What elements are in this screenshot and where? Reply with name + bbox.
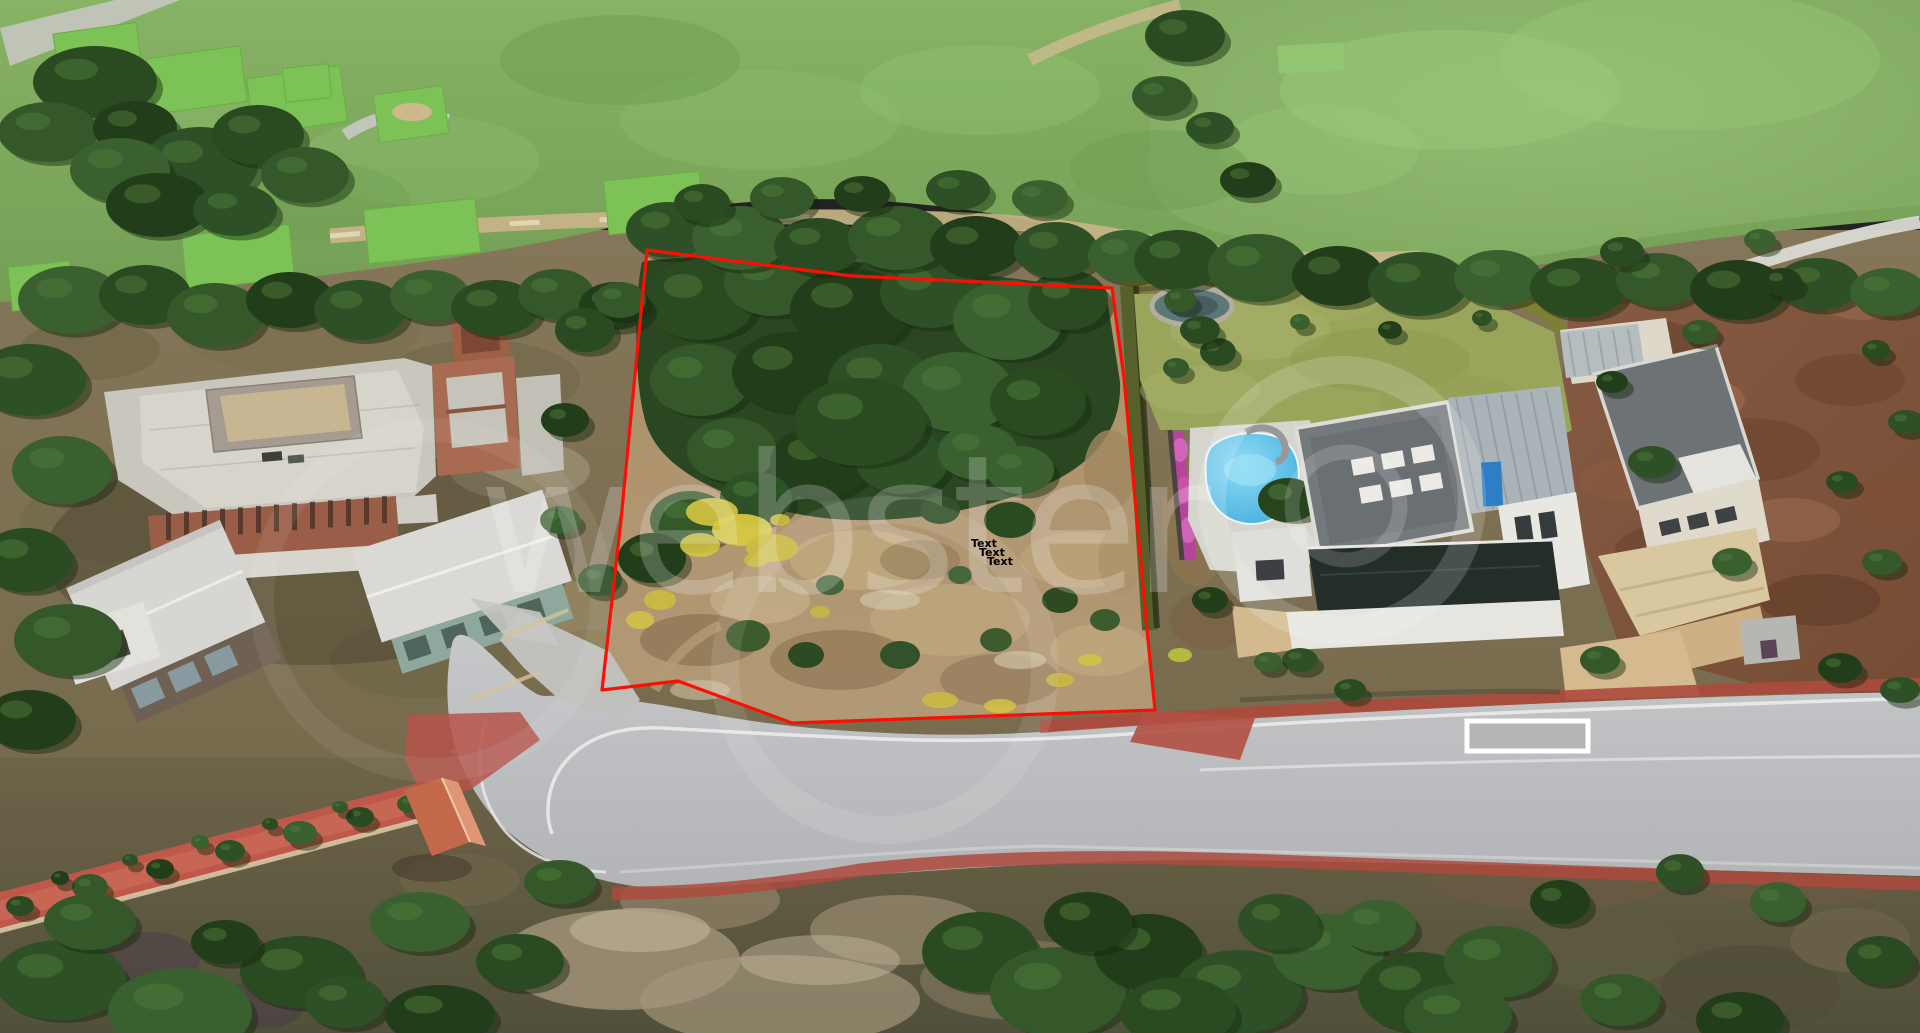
flower-patch — [922, 692, 958, 708]
tree-highlight — [1007, 380, 1041, 400]
tree — [1014, 222, 1098, 278]
tree-highlight — [1711, 1002, 1742, 1019]
tree-highlight — [566, 316, 587, 329]
arcade-slat — [346, 499, 351, 526]
tee-sand-patch — [392, 103, 432, 121]
tree-highlight — [1194, 118, 1211, 128]
tree — [524, 860, 596, 904]
tree-highlight — [844, 182, 864, 193]
tree — [193, 184, 277, 236]
tree-highlight — [1308, 257, 1340, 275]
tree-highlight — [16, 113, 51, 131]
redacted-street-label — [1467, 721, 1588, 751]
tree — [305, 976, 385, 1028]
aerial-image: webster Text Text Text — [0, 0, 1920, 1033]
tree — [1163, 358, 1189, 378]
tree — [1044, 892, 1132, 952]
tee-box — [282, 64, 331, 103]
tree-highlight — [184, 294, 218, 313]
tree — [1378, 321, 1402, 339]
tree-highlight — [330, 291, 362, 309]
tree-highlight — [752, 346, 793, 370]
tree-highlight — [162, 140, 203, 163]
tree-highlight — [1541, 888, 1562, 901]
building-shadow — [392, 854, 472, 882]
tree-highlight — [133, 983, 183, 1009]
tree-highlight — [866, 217, 901, 236]
tree — [1744, 229, 1776, 251]
tree — [283, 821, 317, 845]
tree-highlight — [531, 278, 558, 293]
tree-highlight — [1719, 553, 1733, 561]
tree — [1862, 340, 1890, 360]
tree-highlight — [668, 357, 703, 379]
tree — [1628, 446, 1676, 478]
tree — [122, 854, 138, 866]
rooftop-object — [262, 451, 283, 462]
tree — [1580, 646, 1620, 674]
flower-patch — [1078, 654, 1102, 666]
tree-highlight — [1858, 944, 1882, 958]
watermark-text: webster — [478, 415, 1211, 638]
tree — [926, 170, 990, 210]
tree-highlight — [1101, 239, 1128, 255]
tree — [1862, 549, 1902, 575]
tree — [594, 282, 646, 318]
pool-house-opening — [1255, 559, 1284, 580]
tree-highlight — [922, 366, 961, 390]
tree — [1238, 894, 1318, 950]
tree-highlight — [1143, 83, 1164, 95]
tree — [1340, 900, 1416, 952]
tree-highlight — [1869, 554, 1883, 562]
tree-highlight — [1769, 273, 1783, 281]
tree-highlight — [1340, 683, 1351, 690]
tree-highlight — [1688, 324, 1701, 331]
tree-highlight — [603, 288, 621, 299]
tree — [191, 920, 259, 964]
arcade-slat — [238, 507, 243, 534]
tree — [1134, 230, 1222, 290]
aerial-property-screenshot: webster Text Text Text — [0, 0, 1920, 1033]
tree — [1762, 268, 1802, 296]
tree-highlight — [108, 110, 137, 126]
grass-blotch — [500, 15, 740, 105]
tree-highlight — [388, 903, 423, 921]
tee-box — [1277, 42, 1344, 73]
tree — [774, 218, 862, 274]
arcade-slat — [382, 496, 387, 523]
plot-scrub-blotch — [788, 642, 824, 668]
tree — [476, 934, 564, 990]
arcade-slat — [256, 506, 261, 533]
plot-scrub-blotch — [880, 641, 920, 669]
tree — [1580, 974, 1660, 1026]
tree — [51, 871, 69, 885]
tree-highlight — [664, 274, 703, 298]
tree-highlight — [228, 116, 260, 134]
tree — [1145, 10, 1225, 62]
arcade-slat — [310, 502, 315, 529]
outbuilding — [1740, 615, 1800, 665]
flower-patch — [984, 699, 1016, 713]
tree — [332, 801, 348, 813]
outbuilding-door — [1760, 639, 1778, 659]
tree-highlight — [1029, 232, 1058, 249]
tree — [1596, 371, 1628, 393]
tree-highlight — [33, 617, 71, 639]
tree-highlight — [1226, 246, 1261, 266]
tree-highlight — [1159, 19, 1187, 35]
tree-highlight — [1664, 860, 1681, 871]
tree-highlight — [88, 149, 123, 168]
tree-highlight — [811, 283, 853, 308]
tree-highlight — [1760, 889, 1780, 901]
tree — [750, 177, 814, 219]
tree-highlight — [684, 191, 704, 202]
arcade-slat — [166, 513, 171, 540]
tree-highlight — [972, 294, 1011, 318]
tree — [1220, 162, 1276, 198]
arcade-slat — [364, 498, 369, 525]
tree-highlight — [220, 844, 231, 851]
tree-highlight — [1887, 682, 1901, 690]
tree — [930, 216, 1022, 276]
tree-highlight — [276, 157, 307, 174]
tree-highlight — [1252, 904, 1280, 921]
bottom-blotch — [570, 908, 710, 952]
tree-highlight — [404, 996, 443, 1014]
tree-highlight — [335, 803, 341, 807]
tree — [1846, 936, 1914, 984]
tree-highlight — [1187, 321, 1201, 329]
bottom-blotch — [740, 935, 900, 985]
tree — [146, 859, 174, 879]
tree-highlight — [1587, 651, 1601, 659]
tree — [6, 896, 34, 916]
text-label: Text — [987, 555, 1013, 568]
tree-highlight — [1547, 269, 1581, 287]
tree-highlight — [55, 59, 98, 81]
tree — [1712, 548, 1752, 576]
tree-highlight — [1022, 186, 1042, 197]
tree — [1472, 310, 1492, 326]
tree-highlight — [151, 863, 161, 869]
tree — [12, 436, 112, 504]
tree-highlight — [1867, 344, 1877, 350]
tree-highlight — [208, 193, 237, 209]
tree-highlight — [60, 904, 92, 921]
tree — [1334, 679, 1366, 701]
tree-highlight — [265, 820, 271, 824]
flower-patch — [1168, 648, 1192, 662]
tree-highlight — [203, 928, 227, 941]
tree-highlight — [1476, 313, 1483, 318]
tree-highlight — [1379, 966, 1421, 990]
tree — [262, 818, 278, 830]
tree-highlight — [946, 227, 978, 245]
tree-highlight — [115, 276, 147, 294]
tree — [1254, 652, 1282, 672]
tree — [215, 840, 245, 862]
tree-highlight — [36, 278, 72, 298]
tree — [1682, 320, 1718, 344]
tree — [1208, 234, 1308, 302]
tree-highlight — [491, 944, 522, 961]
tree — [1186, 112, 1234, 144]
tree-highlight — [1423, 995, 1461, 1014]
tee-box — [363, 198, 480, 263]
side-deck — [396, 494, 438, 524]
tree — [44, 894, 136, 950]
tree — [191, 835, 209, 849]
tree-highlight — [537, 868, 562, 881]
tree-highlight — [1230, 168, 1250, 179]
tree-highlight — [942, 926, 983, 950]
tree-highlight — [846, 357, 882, 380]
tree-highlight — [1386, 263, 1421, 282]
tree — [14, 604, 122, 676]
tree — [834, 176, 890, 212]
tree — [1180, 316, 1220, 344]
tree-highlight — [1594, 983, 1622, 999]
tree-highlight — [1140, 989, 1181, 1010]
tree — [261, 147, 349, 203]
tree-highlight — [1707, 271, 1741, 289]
tree — [1818, 653, 1862, 683]
tree-highlight — [1014, 963, 1062, 990]
tree-highlight — [1294, 317, 1301, 322]
tree-highlight — [1863, 276, 1890, 290]
tree-highlight — [1602, 375, 1613, 382]
tree-highlight — [1170, 292, 1181, 299]
tree-highlight — [261, 282, 292, 299]
tree-highlight — [17, 954, 63, 978]
tree-highlight — [404, 279, 432, 295]
tree-highlight — [466, 290, 497, 307]
tree-highlight — [54, 873, 60, 877]
tree-highlight — [1149, 241, 1180, 259]
tree-highlight — [1382, 324, 1390, 329]
rooftop-object — [288, 454, 305, 463]
tree-highlight — [1636, 452, 1653, 462]
tree — [370, 892, 470, 952]
tree — [1880, 677, 1920, 703]
tree-highlight — [1059, 903, 1090, 921]
tree-highlight — [125, 856, 131, 860]
tree — [1132, 76, 1192, 116]
tree — [1368, 252, 1468, 316]
tree-highlight — [1259, 656, 1269, 662]
tree — [1656, 854, 1704, 890]
tree-highlight — [11, 900, 21, 906]
tree-highlight — [761, 184, 783, 197]
tree-highlight — [194, 837, 200, 841]
tree-highlight — [1463, 939, 1501, 961]
tree-highlight — [1042, 281, 1070, 299]
tree — [1826, 471, 1858, 493]
tree-highlight — [1353, 909, 1380, 925]
tree-highlight — [261, 949, 303, 971]
tree — [1012, 180, 1068, 216]
tree — [1600, 237, 1644, 267]
grass-blotch — [860, 45, 1100, 135]
tree-highlight — [289, 825, 301, 832]
tree — [1454, 250, 1542, 306]
tree-highlight — [1826, 658, 1841, 667]
tree — [1750, 882, 1806, 922]
tree-highlight — [30, 448, 65, 468]
tree-highlight — [1894, 414, 1907, 421]
tree-highlight — [1168, 362, 1177, 368]
tree-highlight — [937, 177, 959, 189]
tree-highlight — [319, 985, 347, 1001]
tree-highlight — [124, 184, 160, 203]
arcade-slat — [328, 500, 333, 527]
tree-highlight — [1750, 233, 1761, 240]
tree-highlight — [1608, 242, 1623, 251]
tree — [674, 184, 730, 222]
tree-highlight — [0, 701, 32, 719]
tree-highlight — [1832, 475, 1843, 482]
tree-highlight — [1288, 652, 1301, 659]
tree-highlight — [641, 212, 670, 229]
tree — [1164, 288, 1196, 312]
tree — [1530, 880, 1590, 924]
tree — [1290, 314, 1310, 330]
tree-highlight — [1469, 260, 1500, 277]
tree-highlight — [789, 228, 820, 245]
tree-highlight — [78, 879, 91, 887]
